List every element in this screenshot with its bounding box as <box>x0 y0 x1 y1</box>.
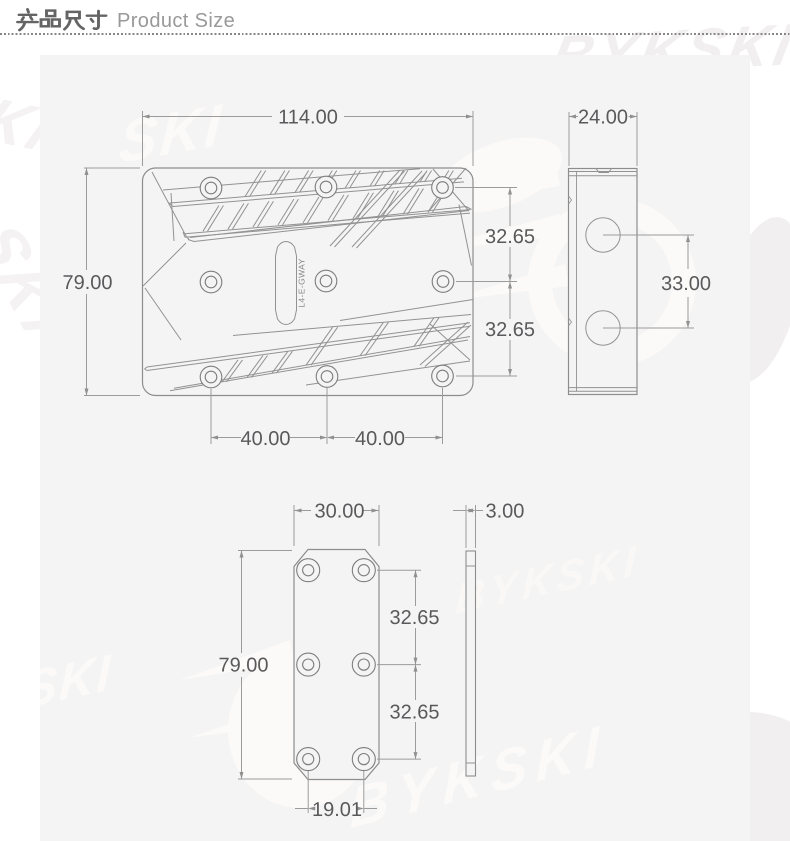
svg-text:79.00: 79.00 <box>218 655 268 677</box>
svg-text:79.00: 79.00 <box>62 272 112 294</box>
svg-text:32.65: 32.65 <box>389 607 439 629</box>
svg-text:19.01: 19.01 <box>312 799 362 821</box>
svg-text:3.00: 3.00 <box>486 501 525 523</box>
svg-text:24.00: 24.00 <box>578 107 628 129</box>
svg-text:SKI: SKI <box>24 643 113 719</box>
svg-text:40.00: 40.00 <box>355 428 405 450</box>
svg-text:BYKSKI: BYKSKI <box>350 711 608 840</box>
svg-text:30.00: 30.00 <box>314 501 364 523</box>
svg-text:KI: KI <box>597 750 682 841</box>
svg-text:32.65: 32.65 <box>389 702 439 724</box>
svg-text:SKI: SKI <box>117 91 226 176</box>
svg-text:114.00: 114.00 <box>278 107 338 129</box>
svg-text:32.65: 32.65 <box>485 226 535 248</box>
svg-text:40.00: 40.00 <box>240 428 290 450</box>
svg-text:BYKSKI: BYKSKI <box>545 12 790 90</box>
svg-text:L4-E-GWAY: L4-E-GWAY <box>297 258 307 307</box>
svg-text:33.00: 33.00 <box>661 273 711 295</box>
svg-text:SKI: SKI <box>0 77 67 164</box>
svg-text:32.65: 32.65 <box>485 319 535 341</box>
svg-text:BYKSKI: BYKSKI <box>455 536 641 624</box>
